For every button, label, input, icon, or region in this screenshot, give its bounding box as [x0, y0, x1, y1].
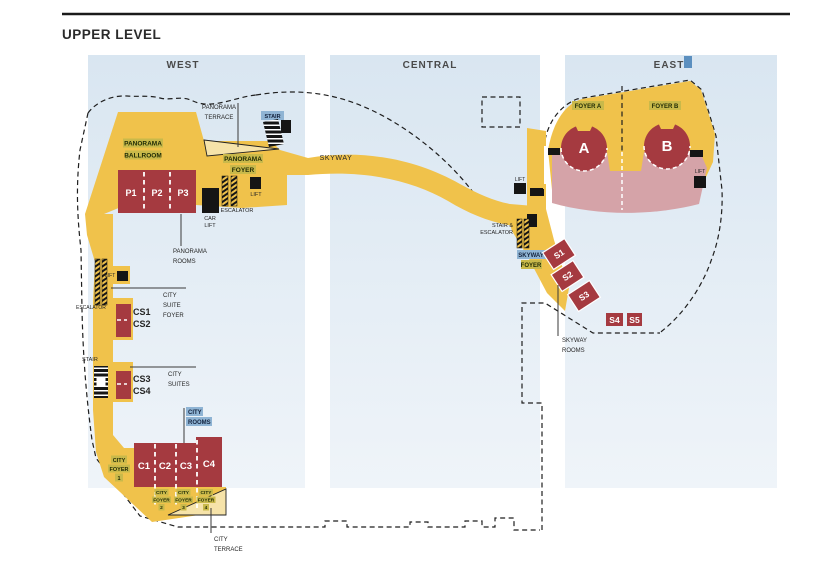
- room-cs4-label: CS4: [133, 386, 151, 396]
- skyway-rooms-caption-line2: ROOMS: [562, 348, 585, 354]
- panorama-ballroom-label-line1: PANORAMA: [124, 141, 162, 148]
- room-c2-label: C2: [159, 461, 171, 472]
- city-rooms-caption-line2: ROOMS: [188, 420, 211, 426]
- lift-icon: [117, 271, 128, 281]
- city-foyer-4-line2: FOYER: [198, 498, 215, 504]
- room-cs1-label: CS1: [133, 307, 151, 317]
- floor-plan-page: UPPER LEVEL WEST CENTRAL EAST SKYWAY: [0, 0, 827, 567]
- skyway-foyer-caption-line1: SKYWAY: [518, 253, 543, 259]
- skyway-rooms-caption-line1: SKYWAY: [562, 338, 587, 344]
- escalator-icon: [524, 219, 529, 248]
- city-suite-foyer-caption-line2: SUITE: [163, 303, 181, 309]
- city-foyer-3-line1: CITY: [178, 490, 190, 496]
- panorama-rooms-caption-line1: PANORAMA: [173, 249, 207, 255]
- central-band: [330, 55, 540, 488]
- room-c3-label: C3: [180, 461, 192, 472]
- car-lift-icon: [202, 188, 219, 213]
- room-s4-label: S4: [609, 315, 620, 325]
- city-foyer-2-line1: CITY: [156, 490, 168, 496]
- east-lift-label: LIFT: [695, 169, 705, 175]
- city-suites-caption-line1: CITY: [168, 372, 182, 378]
- room-cs3-cs4: [116, 371, 131, 399]
- city-suites-caption-line2: SUITES: [168, 382, 190, 388]
- foyer-escalator-label: ESCALATOR: [221, 208, 254, 214]
- car-lift-label-line2: LIFT: [204, 223, 216, 229]
- panorama-foyer-label-line1: PANORAMA: [224, 156, 262, 163]
- room-c4-label: C4: [203, 459, 216, 470]
- east-section-label: EAST: [654, 60, 685, 71]
- stair-escalator-caption-line1: STAIR &: [492, 223, 513, 229]
- city-suite-foyer-caption-line1: CITY: [163, 293, 177, 299]
- central-lift-label: LIFT: [515, 177, 525, 183]
- city-foyer-3-line2: FOYER: [175, 498, 192, 504]
- panorama-terrace-caption-line1: PANORAMA: [202, 105, 236, 111]
- stair-escalator-caption-line2: ESCALATOR: [480, 230, 513, 236]
- skyway-label: SKYWAY: [320, 155, 353, 162]
- city-terrace-caption-line1: CITY: [214, 537, 228, 543]
- stair-top-label: STAIR: [264, 114, 280, 120]
- escalator-icon: [222, 176, 228, 206]
- room-p2-label: P2: [151, 188, 162, 198]
- panorama-rooms-caption-line2: ROOMS: [173, 259, 196, 265]
- page-title: UPPER LEVEL: [62, 27, 161, 42]
- panorama-terrace-caption-line2: TERRACE: [205, 115, 234, 121]
- room-cs2-label: CS2: [133, 319, 151, 329]
- escalator-icon: [95, 259, 100, 305]
- lift-icon: [514, 183, 526, 194]
- escalator-icon: [231, 176, 237, 206]
- city-foyer-4-line3: 4: [205, 505, 208, 511]
- city-foyer-2-line3: 2: [160, 505, 163, 511]
- skyway-foyer-caption-line2: FOYER: [521, 263, 542, 269]
- room-c1-label: C1: [138, 461, 151, 472]
- upper-level-floor-plan: UPPER LEVEL WEST CENTRAL EAST SKYWAY: [0, 0, 827, 567]
- panorama-ballroom-label-line2: BALLROOM: [124, 153, 162, 160]
- escalator-icon: [517, 219, 522, 248]
- room-p1-label: P1: [125, 188, 136, 198]
- city-foyer-2-line2: FOYER: [153, 498, 170, 504]
- city-suite-foyer-caption-line3: FOYER: [163, 313, 184, 319]
- city-foyer-4-line1: CITY: [201, 490, 213, 496]
- foyer-a-label: FOYER A: [575, 104, 602, 110]
- west-section-label: WEST: [167, 60, 200, 71]
- city-foyer-3-line3: 3: [182, 505, 185, 511]
- lift-icon: [250, 177, 261, 189]
- car-lift-label-line1: CAR: [204, 216, 216, 222]
- east-marker: [684, 56, 692, 68]
- city-terrace-caption-line2: TERRACE: [214, 547, 243, 553]
- stair-lower-label: STAIR: [82, 357, 98, 363]
- foyer-lift-label: LIFT: [250, 192, 262, 198]
- escalator-icon: [102, 259, 107, 305]
- lift-icon: [694, 176, 706, 188]
- hall-a-label: A: [579, 140, 590, 157]
- hall-b-label: B: [662, 138, 673, 155]
- city-foyer-1-line2: FOYER: [110, 467, 129, 473]
- equipment-mark: [530, 188, 543, 196]
- corridor-escalator-label: ESCALATOR: [76, 305, 106, 311]
- room-cs3-label: CS3: [133, 374, 151, 384]
- foyer-b-label: FOYER B: [652, 104, 679, 110]
- city-rooms-caption-line1: CITY: [188, 410, 202, 416]
- stair-landing-mark: [281, 120, 291, 133]
- door-mark: [548, 148, 560, 155]
- room-s5-label: S5: [629, 315, 640, 325]
- central-section-label: CENTRAL: [403, 60, 458, 71]
- city-foyer-1-line3: 1: [117, 476, 120, 482]
- between-halls-foyer: [607, 152, 644, 171]
- corridor-lift-label: LIFT: [105, 273, 115, 279]
- city-foyer-1-line1: CITY: [113, 458, 126, 464]
- door-mark: [690, 150, 703, 157]
- panorama-foyer-label-line2: FOYER: [232, 167, 255, 174]
- stair-landing-mark: [97, 377, 106, 386]
- room-p3-label: P3: [177, 188, 188, 198]
